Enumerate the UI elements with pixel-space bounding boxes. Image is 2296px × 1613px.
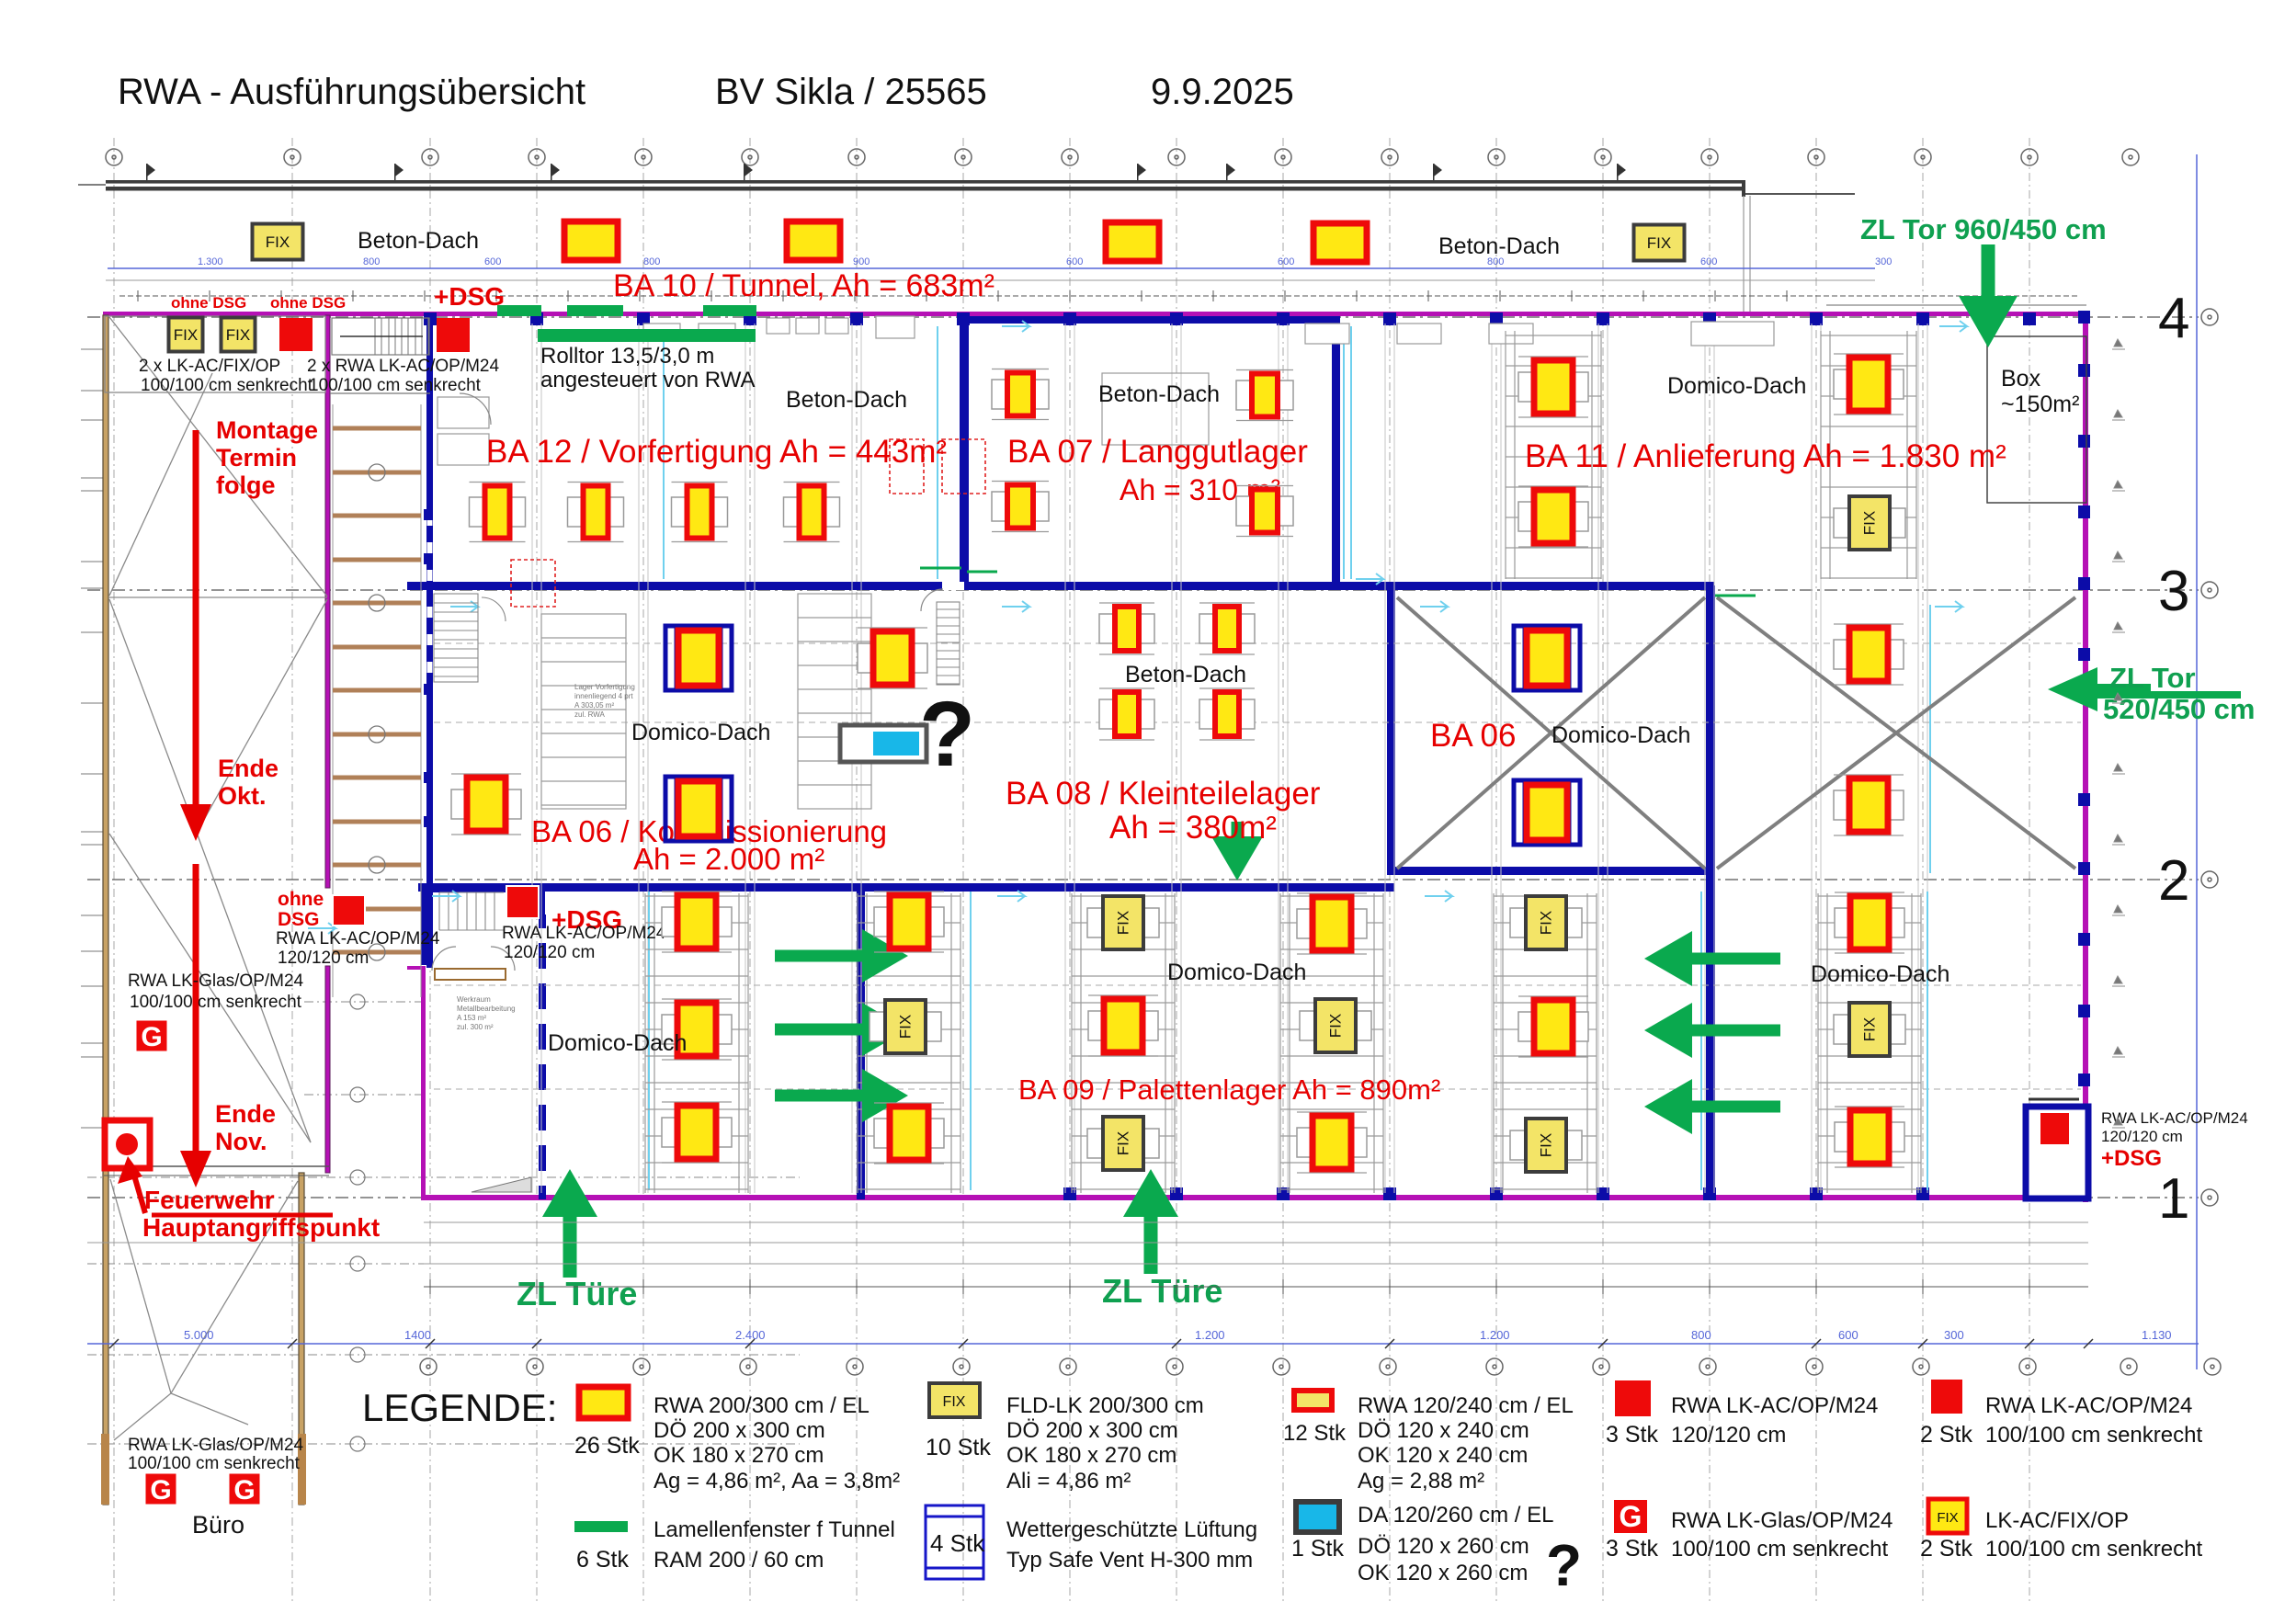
- svg-text:1 Stk: 1 Stk: [1291, 1536, 1344, 1562]
- svg-text:600: 600: [1278, 256, 1294, 267]
- svg-text:FIX: FIX: [1115, 911, 1132, 935]
- svg-text:BA 12 / Vorfertigung Ah = 443m: BA 12 / Vorfertigung Ah = 443m²: [486, 434, 947, 470]
- svg-text:1400: 1400: [404, 1328, 431, 1342]
- svg-text:DÖ 200 x 300 cm: DÖ 200 x 300 cm: [654, 1418, 825, 1443]
- svg-text:Ah = 2.000 m²: Ah = 2.000 m²: [633, 842, 824, 876]
- svg-text:Domico-Dach: Domico-Dach: [1552, 722, 1690, 748]
- svg-text:600: 600: [484, 256, 501, 267]
- svg-text:Ende: Ende: [215, 1100, 276, 1128]
- svg-text:RWA LK-AC/OP/M24: RWA LK-AC/OP/M24: [1671, 1393, 1878, 1418]
- svg-text:1.200: 1.200: [1195, 1328, 1225, 1342]
- svg-text:FIX: FIX: [1327, 1014, 1345, 1038]
- svg-text:RWA LK-AC/OP/M24: RWA LK-AC/OP/M24: [276, 929, 440, 948]
- svg-text:RWA - Ausführungsübersicht: RWA - Ausführungsübersicht: [118, 72, 585, 112]
- svg-text:Ag = 4,86 m², Aa = 3,8m²: Ag = 4,86 m², Aa = 3,8m²: [654, 1469, 900, 1494]
- svg-text:300: 300: [1875, 256, 1892, 267]
- svg-text:LEGENDE:: LEGENDE:: [362, 1386, 557, 1429]
- svg-text:1: 1: [2158, 1167, 2189, 1231]
- svg-text:+DSG: +DSG: [2101, 1146, 2162, 1171]
- svg-text:RAM 200 / 60 cm: RAM 200 / 60 cm: [654, 1548, 824, 1573]
- svg-text:RWA 120/240 cm / EL: RWA 120/240 cm / EL: [1358, 1393, 1574, 1418]
- svg-text:BA 10 / Tunnel, Ah = 683m²: BA 10 / Tunnel, Ah = 683m²: [613, 268, 995, 303]
- svg-text:FIX: FIX: [1115, 1131, 1132, 1155]
- svg-text:FLD-LK 200/300 cm: FLD-LK 200/300 cm: [1006, 1393, 1204, 1418]
- svg-text:Typ Safe Vent H-300 mm: Typ Safe Vent H-300 mm: [1006, 1548, 1253, 1573]
- svg-text:FIX: FIX: [1861, 511, 1879, 535]
- svg-text:900: 900: [853, 256, 870, 267]
- svg-text:DÖ 120 x 240 cm: DÖ 120 x 240 cm: [1358, 1418, 1529, 1443]
- svg-text:FIX: FIX: [943, 1394, 966, 1410]
- svg-text:Ag = 2,88 m²: Ag = 2,88 m²: [1358, 1469, 1484, 1494]
- svg-text:FIX: FIX: [174, 326, 198, 344]
- svg-text:folge: folge: [216, 471, 276, 499]
- svg-text:120/120 cm: 120/120 cm: [278, 948, 369, 968]
- svg-text:Wettergeschützte Lüftung: Wettergeschützte Lüftung: [1006, 1517, 1257, 1542]
- svg-text:Termin: Termin: [216, 444, 297, 471]
- svg-text:ZL Türe: ZL Türe: [1102, 1272, 1222, 1310]
- svg-text:Box: Box: [2001, 366, 2041, 392]
- svg-text:520/450 cm: 520/450 cm: [2103, 693, 2255, 725]
- svg-text:FIX: FIX: [1937, 1510, 1958, 1526]
- svg-text:1.300: 1.300: [198, 256, 223, 267]
- svg-text:Domico-Dach: Domico-Dach: [631, 720, 770, 745]
- svg-text:120/120 cm: 120/120 cm: [504, 943, 595, 962]
- svg-text:120/120 cm: 120/120 cm: [2101, 1128, 2183, 1145]
- svg-text:RWA LK-Glas/OP/M24: RWA LK-Glas/OP/M24: [128, 971, 304, 991]
- svg-text:26 Stk: 26 Stk: [574, 1433, 640, 1459]
- svg-text:DÖ 120 x 260 cm: DÖ 120 x 260 cm: [1358, 1534, 1529, 1559]
- svg-text:RWA LK-AC/OP/M24: RWA LK-AC/OP/M24: [1985, 1393, 2192, 1418]
- svg-text:100/100 cm senkrecht: 100/100 cm senkrecht: [1985, 1423, 2202, 1448]
- svg-text:G: G: [150, 1475, 171, 1505]
- svg-text:800: 800: [1691, 1328, 1711, 1342]
- svg-text:RWA LK-AC/OP/M24: RWA LK-AC/OP/M24: [2101, 1109, 2248, 1127]
- svg-text:10 Stk: 10 Stk: [926, 1435, 991, 1460]
- svg-text:A 303,05 m²: A 303,05 m²: [574, 701, 614, 710]
- svg-text:1.200: 1.200: [1480, 1328, 1510, 1342]
- svg-text:FIX: FIX: [226, 326, 250, 344]
- svg-text:DÖ 200 x 300 cm: DÖ 200 x 300 cm: [1006, 1418, 1178, 1443]
- svg-text:Beton-Dach: Beton-Dach: [786, 387, 907, 413]
- svg-text:ohne DSG: ohne DSG: [270, 294, 346, 312]
- svg-text:FIX: FIX: [266, 233, 290, 251]
- svg-text:100/100 cm senkrecht: 100/100 cm senkrecht: [309, 376, 482, 395]
- svg-text:Lamellenfenster f Tunnel: Lamellenfenster f Tunnel: [654, 1517, 895, 1542]
- svg-text:DSG: DSG: [278, 909, 320, 930]
- svg-text:zul. RWA: zul. RWA: [574, 710, 606, 719]
- svg-text:2.400: 2.400: [735, 1328, 766, 1342]
- svg-text:ohne: ohne: [278, 889, 324, 910]
- svg-text:innenliegend 4 prt: innenliegend 4 prt: [574, 692, 633, 700]
- svg-text:Ende: Ende: [218, 755, 278, 782]
- svg-text:Domico-Dach: Domico-Dach: [1811, 961, 1949, 987]
- svg-text:Beton-Dach: Beton-Dach: [1098, 381, 1220, 407]
- svg-text:Montage: Montage: [216, 416, 318, 444]
- svg-text:RWA LK-Glas/OP/M24: RWA LK-Glas/OP/M24: [1671, 1508, 1892, 1533]
- svg-text:DA 120/260 cm / EL: DA 120/260 cm / EL: [1358, 1503, 1553, 1528]
- svg-text:Ah = 380m²: Ah = 380m²: [1109, 810, 1277, 846]
- svg-text:angesteuert von RWA: angesteuert von RWA: [540, 368, 755, 392]
- svg-text:Okt.: Okt.: [218, 782, 267, 810]
- svg-text:Beton-Dach: Beton-Dach: [1125, 662, 1246, 687]
- svg-text:ZL Tor: ZL Tor: [2109, 662, 2196, 694]
- svg-text:BA 07 / Langgutlager: BA 07 / Langgutlager: [1007, 434, 1308, 470]
- svg-text:Ali = 4,86 m²: Ali = 4,86 m²: [1006, 1469, 1131, 1494]
- svg-text:FIX: FIX: [1538, 911, 1555, 935]
- svg-text:Nov.: Nov.: [215, 1128, 267, 1155]
- svg-text:A 153 m²: A 153 m²: [457, 1014, 486, 1022]
- svg-text:FIX: FIX: [1861, 1017, 1879, 1041]
- svg-text:100/100 cm senkrecht: 100/100 cm senkrecht: [128, 1454, 301, 1473]
- svg-text:Büro: Büro: [192, 1511, 244, 1539]
- svg-text:FIX: FIX: [1538, 1133, 1555, 1157]
- svg-text:BA 06: BA 06: [1430, 718, 1516, 754]
- svg-text:300: 300: [1944, 1328, 1964, 1342]
- svg-text:800: 800: [363, 256, 380, 267]
- svg-text:ZL Tor 960/450 cm: ZL Tor 960/450 cm: [1860, 213, 2107, 245]
- svg-text:1.130: 1.130: [2142, 1328, 2172, 1342]
- svg-text:3 Stk: 3 Stk: [1606, 1536, 1658, 1562]
- svg-text:+DSG: +DSG: [434, 282, 505, 311]
- svg-text:Lager Vorfertigung: Lager Vorfertigung: [574, 683, 635, 691]
- svg-text:LK-AC/FIX/OP: LK-AC/FIX/OP: [1985, 1508, 2129, 1533]
- svg-text:Beton-Dach: Beton-Dach: [1438, 233, 1560, 259]
- svg-text:RWA LK-AC/OP/M24: RWA LK-AC/OP/M24: [502, 924, 666, 943]
- svg-text:Hauptangriffspunkt: Hauptangriffspunkt: [142, 1213, 380, 1242]
- svg-text:600: 600: [1700, 256, 1717, 267]
- svg-text:~150m²: ~150m²: [2001, 392, 2079, 417]
- svg-text:100/100 cm senkrecht: 100/100 cm senkrecht: [130, 993, 302, 1012]
- svg-text:12 Stk: 12 Stk: [1283, 1421, 1347, 1446]
- svg-text:100/100 cm senkrecht: 100/100 cm senkrecht: [1671, 1537, 1888, 1562]
- svg-text:Werkraum: Werkraum: [457, 995, 491, 1004]
- svg-text:FIX: FIX: [1647, 234, 1671, 252]
- svg-text:RWA LK-Glas/OP/M24: RWA LK-Glas/OP/M24: [128, 1436, 304, 1455]
- svg-text:OK 120 x 260 cm: OK 120 x 260 cm: [1358, 1561, 1528, 1585]
- svg-text:?: ?: [1546, 1532, 1582, 1598]
- svg-text:Beton-Dach: Beton-Dach: [358, 228, 479, 254]
- svg-text:zul. 300 m²: zul. 300 m²: [457, 1023, 494, 1031]
- svg-text:BV Sikla / 25565: BV Sikla / 25565: [715, 72, 987, 112]
- svg-text:ohne DSG: ohne DSG: [171, 294, 246, 312]
- svg-text:2 Stk: 2 Stk: [1920, 1422, 1972, 1448]
- svg-text:100/100 cm senkrecht: 100/100 cm senkrecht: [1985, 1537, 2202, 1562]
- svg-text:5.000: 5.000: [184, 1328, 214, 1342]
- svg-text:Domico-Dach: Domico-Dach: [1667, 373, 1806, 399]
- svg-text:BA 11 / Anlieferung Ah = 1.830: BA 11 / Anlieferung Ah = 1.830 m²: [1525, 438, 2006, 474]
- svg-text:G: G: [233, 1475, 255, 1505]
- svg-text:OK 180 x 270 cm: OK 180 x 270 cm: [1006, 1443, 1176, 1468]
- svg-text:RWA 200/300 cm / EL: RWA 200/300 cm / EL: [654, 1393, 870, 1418]
- svg-text:Domico-Dach: Domico-Dach: [1167, 960, 1306, 985]
- svg-text:6 Stk: 6 Stk: [576, 1547, 629, 1573]
- svg-text:G: G: [141, 1022, 162, 1052]
- svg-text:120/120 cm: 120/120 cm: [1671, 1423, 1786, 1448]
- svg-text:4: 4: [2158, 287, 2189, 350]
- svg-text:2: 2: [2158, 849, 2189, 913]
- svg-text:3 Stk: 3 Stk: [1606, 1422, 1658, 1448]
- svg-text:ZL Türe: ZL Türe: [517, 1275, 637, 1312]
- svg-text:OK 120 x 240 cm: OK 120 x 240 cm: [1358, 1443, 1528, 1468]
- svg-text:BA 09 / Palettenlager Ah = 890: BA 09 / Palettenlager Ah = 890m²: [1018, 1073, 1440, 1106]
- svg-text:Metallbearbeitung: Metallbearbeitung: [457, 1005, 516, 1013]
- svg-text:BA 08 / Kleinteilelager: BA 08 / Kleinteilelager: [1006, 776, 1321, 812]
- svg-text:3: 3: [2158, 560, 2189, 623]
- svg-text:600: 600: [1066, 256, 1083, 267]
- svg-text:600: 600: [1838, 1328, 1858, 1342]
- svg-text:?: ?: [919, 683, 975, 786]
- svg-text:4 Stk: 4 Stk: [930, 1529, 985, 1557]
- svg-text:Domico-Dach: Domico-Dach: [548, 1030, 687, 1056]
- svg-text:2 x LK-AC/FIX/OP: 2 x LK-AC/FIX/OP: [139, 357, 280, 376]
- svg-text:FIX: FIX: [897, 1015, 915, 1039]
- svg-text:OK 180 x 270 cm: OK 180 x 270 cm: [654, 1443, 824, 1468]
- svg-text:800: 800: [643, 256, 660, 267]
- svg-text:9.9.2025: 9.9.2025: [1151, 72, 1294, 112]
- svg-text:100/100 cm senkrecht: 100/100 cm senkrecht: [141, 376, 313, 395]
- svg-text:2 x RWA LK-AC/OP/M24: 2 x RWA LK-AC/OP/M24: [307, 357, 499, 376]
- svg-text:2 Stk: 2 Stk: [1920, 1536, 1972, 1562]
- svg-text:G: G: [1620, 1500, 1642, 1533]
- svg-text:Rolltor 13,5/3,0 m: Rolltor 13,5/3,0 m: [540, 344, 714, 369]
- svg-text:Feuerwehr: Feuerwehr: [144, 1186, 275, 1214]
